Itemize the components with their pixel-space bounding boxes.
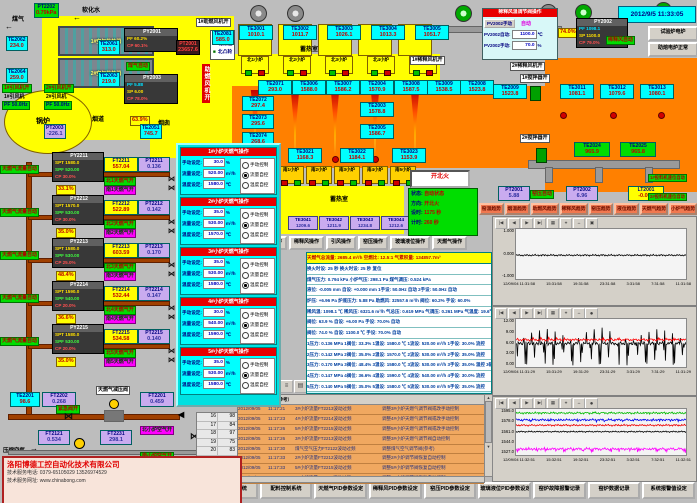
sensor-TE2201: TE220198.6 [10,392,40,407]
regen-sensor: TE30421211.9 [319,216,349,230]
sensor-PT2003: PT2003-226.1 [44,124,66,139]
north-fire-button[interactable]: 开北火 [410,170,470,188]
xtick: 23:31:58 [600,281,616,286]
mode-radio-temp[interactable]: 温度自控 [242,330,273,340]
south-burner[interactable]: 南4小炉 [362,166,388,184]
gas-pressure-sensor: PT22140.147 [138,286,170,301]
burner-green-indicator [371,70,378,76]
north-burner[interactable]: 北1小炉 [241,56,269,74]
datetime-display: 2012/9/5 11:33:05 [618,6,696,23]
burner-red-indicator [258,70,265,76]
burner-red-indicator [393,180,400,186]
nav-button[interactable]: 窑炉故障报警记录 [533,482,586,499]
company-info: 洛阳博德工控自动化技术有限公司 技术服务电话: 0379-65105029 13… [2,456,242,503]
xtick: 12/09/04 11:31:29 [503,369,535,374]
burner-green-indicator [294,180,301,186]
gas-flow-sensor: FT2213603.59 [104,243,138,258]
company-website: 技术服务网址: www.chinabong.com [7,478,237,486]
xtick: 12/09/04 11:31:58 [503,281,535,286]
ytick: 6.00 [506,340,514,345]
gas-valve-position: 35.0% [56,357,76,367]
mode-radio-manual[interactable]: 手动控制 [242,260,273,270]
sensor-TE2063: TE2063219.0 [98,72,120,87]
gas-valve-position: 33.1% [56,185,76,195]
control-mode-group: 手动控制 流量自控 温度自控 [240,358,275,394]
furnace-right [545,58,697,192]
south-burner[interactable]: 南2小炉 [306,166,332,184]
radio-icon [242,322,249,329]
water-arrow-icon: ← [73,14,81,22]
xtick: 23:32:51 [600,457,616,462]
count-row: 17 84 [197,422,237,431]
north-burner[interactable]: 北3小炉 [325,56,353,74]
gas-pressure-sensor: PT22120.142 [138,200,170,215]
north-burner[interactable]: 北2小炉 [283,56,311,74]
gas-train: 天燃气流量自动 PY2211 SPT 1580.0 SPF 520.00 CP … [0,152,178,388]
mode-radio-manual[interactable]: 手动控制 [242,210,273,220]
burner-red-indicator [309,180,316,186]
south-burner-row: 南1小炉 南2小炉 南3小炉 南4小炉 南5小炉 [278,166,416,184]
south-gas-open-label: 南4天燃气开 [104,315,136,324]
ytick: 9.00 [506,329,514,334]
fan-icon [455,5,472,22]
parameter-summary-panel: 天燃气总流量: 2685.4 m³/h 空燃比: 12.5:1 气累积量: 13… [306,252,492,394]
north-gas-open-label: 北1天燃气开 [104,177,136,186]
trend-button[interactable]: 小炉气趋势 [669,203,697,215]
burner-green-indicator [350,180,357,186]
gas-valve-position: 35.0% [56,228,76,238]
south-gas-open-label: 南3天燃气开 [104,272,136,281]
burner-gas-panel: 5#小炉天燃气操作 手动设定: 35.0 % 流量设定: 530.00 m³/h… [180,347,277,395]
sensor-TE2009: TE20091523.8 [493,84,527,99]
burner-gas-panel: 4#小炉天燃气操作 手动设定: 30.0 % 流量设定: 540.00 m³/h… [180,297,277,345]
burner-green-indicator [287,70,294,76]
burner-gas-row: 天燃气流量自动 PY2215 SPT 1580.0 SPF 530.00 CP … [0,324,178,367]
sensor-TE2024: TE2024965.9 [574,142,610,157]
burner-red-indicator [365,180,372,186]
test-furnace-button[interactable]: 试验炉电炉 [648,26,697,41]
scroll-thumb[interactable] [485,401,492,443]
flow-setpoint-input[interactable]: 520.00 [203,169,225,178]
fan2-on-label: 2#引风机开 [44,84,74,93]
status-row: 计时: 260 秒 [411,219,475,229]
burner-gas-panel: 1#小炉天燃气操作 手动设定: 30.0 % 流量设定: 520.00 m³/h… [180,147,277,195]
trend-button[interactable]: 窑压趋势 [589,203,614,215]
chart2-xaxis: 12/09/04 11:31:2915:31:2919:31:2923:31:2… [503,369,691,374]
sensor-PT2001: PT200123657.6 [176,40,200,55]
chart2-yaxis: 12.009.006.003.000.00 [494,318,514,366]
alarm-row[interactable]: 2012/09/05 11:17:26 3#小炉流量FT2213波动过频 调整3… [238,435,484,445]
mode-radio-manual[interactable]: 手动控制 [242,310,273,320]
sensor-TE2064: TE2064259.0 [6,68,28,83]
control-mode-group: 手动控制 流量自控 温度自控 [240,258,275,294]
flow-setpoint-input[interactable]: 530.00 [203,269,225,278]
manual-setpoint-input[interactable]: 30.0 [203,158,225,167]
panel-title: 5#小炉天燃气操作 [181,348,276,356]
burner-green-indicator [245,70,252,76]
gas-valve-position: 48.4% [56,271,76,281]
ytick: 1561.0 [501,429,514,434]
south-gas-valve-icon[interactable]: ⋈ [168,314,175,321]
indicator-dot [560,112,567,119]
radio-icon [242,272,249,279]
flow-setpoint-input[interactable]: 530.00 [203,369,225,378]
burner-green-indicator [378,180,385,186]
xtick: 7:31:58 [651,281,664,286]
sensor-TE2051: TE2051745.7 [140,124,162,139]
south-gas-valve-icon[interactable]: ⋈ [168,271,175,278]
radio-icon [242,372,249,379]
summary-row: 阀位: 63.9 % 自设: +6.00 Pa 手设: 70.0% 自动 [307,317,491,328]
temp-setpoint-input[interactable]: 1580.0 [203,380,225,389]
radio-icon [242,162,249,169]
menu-icon[interactable]: ≡ [280,380,293,393]
gas-flow-sensor: FT2214532.44 [104,286,138,301]
radio-icon [242,222,249,229]
operation-button[interactable]: 玻璃液位操作 [390,236,430,250]
radio-icon [242,282,249,289]
radio-icon [242,182,249,189]
mode-radio-flow[interactable]: 流量自控 [242,220,273,230]
ytick: -1.000 [502,273,514,278]
summary-row: 换火时设: 25 秒 换火时设: 25 秒 复位 [307,264,491,275]
summary-row: 5压力: 0.140 MPa 5阀位: 35.0% 5温设: 1580.0 ℃ … [307,382,491,393]
mode-radio-manual[interactable]: 手动控制 [242,160,273,170]
flow-meter-body [104,410,124,422]
panel-title: 3#小炉天燃气操作 [181,248,276,256]
auto-mode-label: 自动 [521,20,531,27]
fan1-on-label: 1#引风机开 [2,84,32,93]
ytick: 1.000 [504,228,514,233]
regen-sensor: TE30031026.1 [327,25,361,40]
radio-icon [242,172,249,179]
gas-flow-auto-label: 天燃气流量自动 [0,337,39,346]
mode-radio-manual[interactable]: 手动控制 [242,360,273,370]
nav-button[interactable]: 窑压PID参数设定 [424,482,477,499]
burner-red-indicator [384,70,391,76]
regen-label: 蓄热室 [300,44,318,53]
trend-chart-1: |◀◀▶▶|▦⌖↔▣ 1.0000.000-1.000 12/09/04 11:… [492,216,697,306]
burner-gas-panel: 3#小炉天燃气操作 手动设定: 35.0 % 流量设定: 530.00 m³/h… [180,247,277,295]
nav-button[interactable]: 窑炉数据记录 [588,482,641,499]
kiln-pressure-auto-label: 窑压自动 [530,190,554,199]
flow-setpoint-input[interactable]: 530.00 [203,219,225,228]
trend-chart-2: |◀◀▶▶|▦⌖↔▣ ● 12.009.006.003.000.00 12/09… [492,306,697,396]
company-phone: 技术服务电话: 0379-65105029 13526974529 [7,470,237,478]
control-mode-group: 手动控制 流量自控 温度自控 [240,308,275,344]
mode-radio-flow[interactable]: 流量自控 [242,320,273,330]
south-gas-open-label: 南5天燃气开 [104,358,136,367]
sensor-TE3007: TE30071586.2 [326,80,360,95]
nav-button[interactable]: 玻璃液位PID参数设定 [478,482,531,499]
nav-button[interactable]: 稀释风PID参数设定 [369,482,422,499]
radio-icon [242,232,249,239]
burner-red-indicator [300,70,307,76]
north-burner-row: 北1小炉 北2小炉 北3小炉 北4小炉 北5小炉 [241,56,437,74]
temp-setpoint-input[interactable]: 1580.0 [203,180,225,189]
panel-title: 4#小炉天燃气操作 [181,298,276,306]
nav-button[interactable]: 天燃气PID参数设定 [314,482,367,499]
sensor-TE3009: TE30091538.5 [427,80,461,95]
xtick: 11:31:29 [676,369,691,374]
alarm-hscrollbar[interactable] [237,476,485,483]
burner-green-indicator [329,70,336,76]
temp-setpoint-input[interactable]: 1570.0 [203,230,225,239]
melt-heater-button[interactable]: 助熔电炉正常 [648,42,697,57]
gas-flow-controller: PY2213 SPT 1580.0 SPF 530.00 CP 25.0% [52,238,104,268]
flue-label: 烟道 [92,114,104,123]
panel-title: 2#小炉天燃气操作 [181,198,276,206]
summary-row: 3压力: 0.170 MPa 3阀位: 48.4% 3温设: 1580.0 ℃ … [307,360,491,371]
operation-button[interactable]: 窑压操作 [358,236,388,250]
gas-reducer-label: 天燃气减压阀 [96,386,130,395]
burner-gas-popup: 1#小炉天燃气操作 手动设定: 30.0 % 流量设定: 520.00 m³/h… [176,143,281,407]
ytick: 1595.0 [501,408,514,413]
summary-row: 煤气压力: 0.794 kPa 小炉气压: 298.1 Pa 煤气调压: 0.5… [307,275,491,286]
flow-setpoint-input[interactable]: 540.00 [203,319,225,328]
south-gas-valve-icon[interactable]: ⋈ [168,185,175,192]
trend-button[interactable]: 助燃风趋势 [531,203,559,215]
regen-sensor: TE30041013.3 [371,25,405,40]
ytick: 0.00 [506,361,514,366]
north-gas-valve-icon[interactable]: ⋈ [168,219,175,226]
gas-auto-label: 煤气自动 [126,62,150,71]
trend-button-row: 窑温趋势烟温趋势助燃风趋势稀释风趋势窑压趋势液位趋势天燃气趋势小炉气趋势 [479,203,697,215]
sensor-TE3013: TE30131080.1 [640,84,674,99]
chart3-xaxis: 12/09/04 11:32:5115:32:5119:32:5123:32:5… [503,457,691,462]
sensor-TE3021: TE30211168.3 [288,148,322,163]
mode-radio-temp[interactable]: 温度自控 [242,180,273,190]
stirrer1-on-label: 1#搅拌器开 [520,74,550,83]
gas-flow-auto-label: 天燃气流量自动 [0,251,39,260]
xtick: 3:32:51 [627,457,640,462]
north-gas-open-label: 北5天燃气开 [104,349,136,358]
mode-radio-temp[interactable]: 温度自控 [242,380,273,390]
manual-setpoint-input[interactable]: 35.0 [203,258,225,267]
regen-sensor: TE30011010.1 [239,25,273,40]
trend-button[interactable]: 天燃气趋势 [640,203,668,215]
radio-icon [242,212,249,219]
summary-row: 炉压: +6.96 Pa 炉底压力: 5.88 Pa 助燃风: 32557.6 … [307,296,491,307]
hmi-screen: 煤气 ← 软化水 ← PT22020.79kPa 1#空气换热器 2#空气换热器… [0,0,697,503]
mode-radio-flow[interactable]: 流量自控 [242,170,273,180]
ytick: 1544.0 [501,439,514,444]
sensor-FT2231: FT2231298.1 [100,430,132,445]
gas-flow-controller: PY2214 SPT 1590.0 SPF 540.00 CP 20.0% [52,281,104,311]
sensor-TE3006: TE30061588.0 [292,80,326,95]
manual-setpoint-input[interactable]: 35.0 [203,208,225,217]
fan-icon [250,5,267,22]
north-gas-valve-icon[interactable]: ⋈ [168,262,175,269]
controller-PY2003: PY2003 PF 5.88 SP 6.00 CP 78.0% [124,74,178,104]
gas-flow-controller: PY2215 SPT 1580.0 SPF 530.00 CP 20.0% [52,324,104,354]
sensor-FT2121: FT21210.534 [38,430,70,445]
south-gas-valve-icon[interactable]: ⋈ [168,228,175,235]
burner-gas-panel: 2#小炉天燃气操作 手动设定: 35.0 % 流量设定: 530.00 m³/h… [180,197,277,245]
xtick: 19:31:29 [573,369,589,374]
mode-radio-flow[interactable]: 流量自控 [242,270,273,280]
trend-button[interactable]: 稀释风趋势 [560,203,588,215]
alarm-row[interactable]: 2012/09/05 11:17:33 5#小炉流量FT2215波动过频 调整5… [238,464,484,474]
chart1-yaxis: 1.0000.000-1.000 [494,228,514,278]
north-gas-open-label: 北3天燃气开 [104,263,136,272]
alarm-row[interactable]: 2012/09/05 11:17:30 煤气空气压力FT2122波动过频 调整煤… [238,445,484,455]
fan-icon [287,5,304,22]
sensor-TE2008: TE20081523.8 [460,80,494,95]
status-row: 状态: 自动状态 [411,190,475,200]
south-gas-valve-icon[interactable]: ⋈ [168,357,175,364]
mode-radio-temp[interactable]: 温度自控 [242,280,273,290]
radio-icon [242,362,249,369]
trend-button[interactable]: 烟温趋势 [505,203,530,215]
burner-gas-row: 天燃气流量自动 PY2214 SPT 1590.0 SPF 540.00 CP … [0,281,178,324]
operation-button-row: 助燃风操作稀释风操作引风操作窑压操作玻璃液位操作天燃气操作 [252,236,467,250]
scroll-down-icon[interactable]: ▼ [485,444,492,449]
indicator-dot [610,112,617,119]
manual-setpoint-input[interactable]: 30.0 [203,308,225,317]
south-burner[interactable]: 南3小炉 [334,166,360,184]
mode-radio-flow[interactable]: 流量自控 [242,370,273,380]
north-air-open-label: 北小炉空气开 [140,426,174,435]
south-gas-open-label: 南2天燃气开 [104,229,136,238]
comb-fan1-on-label: 1#助燃风机开 [196,18,231,27]
indicator-dot [658,112,665,119]
operation-button[interactable]: 稀释风操作 [289,236,324,250]
south-burner[interactable]: 南1小炉 [278,166,304,184]
north-gas-valve-icon[interactable]: ⋈ [168,305,175,312]
indicator-dot [332,156,339,163]
sensor-PT2202: PT22020.79kPa [34,3,59,18]
alarm-vscrollbar[interactable]: ▲ ▼ [484,394,493,477]
count-row: 20 83 [197,447,237,456]
scroll-up-icon[interactable]: ▲ [485,395,492,400]
summary-row: 2压力: 0.142 MPa 2阀位: 35.0% 2温设: 1570.0 ℃ … [307,350,491,361]
north-burner[interactable]: 北4小炉 [367,56,395,74]
gas-valve-position: 36.6% [56,314,76,324]
gas-flow-auto-label: 天燃气流量自动 [0,294,39,303]
dilution-fan1-on-label: 1#稀释风机开 [410,56,445,65]
radio-icon [242,312,249,319]
summary-row: 液位: -0.005 mm 自设: +0.000 mm 1手设: 50.0Hz … [307,285,491,296]
chart2-plot [515,318,687,368]
north-gas-valve-icon[interactable]: ⋈ [168,176,175,183]
summary-row: 4压力: 0.147 MPa 4阀位: 36.6% 4温设: 1590.0 ℃ … [307,371,491,382]
sensor-TE3023: TE30231153.9 [392,148,426,163]
controller-PY2001: PY2001 PF 60.2% CP 60.1% [124,28,178,52]
manifold-stub [545,167,553,183]
chart3-yaxis: 1595.01578.01561.01544.01527.0 [494,408,514,454]
alarm-rows: 2012/09/05 11:17:21 3#小炉流量FT2213波动过频 调整3… [238,405,484,484]
gas-pressure-sensor: PT22150.140 [138,329,170,344]
trend-button[interactable]: 窑温趋势 [479,203,504,215]
sensor-TE2061: TE2061313.0 [98,40,120,55]
agitator-icon [536,148,547,163]
burner-red-indicator [337,180,344,186]
xtick: 11:32:51 [676,457,691,462]
fan2-speed: PF 50.0Hz [44,101,72,110]
sensor-TE2005: TE20051586.7 [360,124,394,139]
radio-icon [242,382,249,389]
fan1-label: 1#引风机 [4,93,25,100]
burner-red-indicator [281,180,288,186]
burner-green-indicator [413,70,420,76]
manual-setpoint-input[interactable]: 35.0 [203,358,225,367]
south-regen-label: 蓄热室 [330,194,348,203]
operation-button[interactable]: 天燃气操作 [432,236,467,250]
dilution-valve-position: 74.0% [558,28,578,38]
burner-green-indicator [322,180,329,186]
status-row: 设时: 1175 秒 [411,209,475,219]
xtick: 23:31:29 [600,369,616,374]
regen-sensor: TE30051051.7 [415,25,449,40]
xtick: 3:31:29 [627,369,640,374]
regen-sensor-row: TE30011010.1 TE30021011.7 TE30031026.1 T… [239,25,449,40]
sensor-TE2081: TE2081585.0 [212,30,234,45]
operation-button[interactable]: 引风操作 [326,236,356,250]
temp-setpoint-input[interactable]: 1580.0 [203,280,225,289]
xtick: 15:31:58 [546,281,562,286]
pv2002-manual-button[interactable]: PV2002手动 [484,19,515,28]
gas-flow-auto-label: 天燃气流量自动 [0,208,39,217]
status-row: 方向: 开北火 [411,200,475,210]
nav-button[interactable]: 配料控制系统 [260,482,313,499]
feeder2-auto-label: 2#投料机速位自动 [648,193,687,201]
summary-row: 阀位: 74.0 % 自设: 1100.0 ℃ 手设: 70.0% 自动 [307,328,491,339]
regen-sensor: TE30441212.6 [381,216,411,230]
trend-chart-3: |◀◀▶▶|▦⌖↔▣ ● 1595.01578.01561.01544.0152… [492,396,697,482]
bottom-nav: 窑炉控制系统配料控制系统天燃气PID参数设定稀释风PID参数设定窑压PID参数设… [205,482,695,499]
summary-rows: 换火时设: 25 秒 换火时设: 25 秒 复位煤气压力: 0.794 kPa … [307,264,491,392]
nav-button[interactable]: 系统报警值设定 [642,482,695,499]
gas-flow-sensor: FT2211557.04 [104,157,138,172]
radio-icon [242,332,249,339]
mode-radio-temp[interactable]: 温度自控 [242,230,273,240]
xtick: 12/09/04 11:32:51 [503,457,535,462]
meter-indicator [109,399,119,409]
alarm-row[interactable]: 2012/09/05 11:17:26 5#小炉流量FT2215波动过频 调整5… [238,425,484,435]
emergency-valve-icon[interactable]: ⋈ [64,412,73,421]
alarm-row[interactable]: 2012/09/05 11:17:33 2#小炉流量FT2212波动过频 调整2… [238,454,484,464]
xtick: 7:31:29 [651,369,664,374]
sensor-PT2002-kiln: PT20026.96 [566,186,598,201]
temp-setpoint-input[interactable]: 1590.0 [203,330,225,339]
ytick: 1578.0 [501,418,514,423]
ytick: 3.00 [506,350,514,355]
ytick: 0.000 [504,251,514,256]
feeder1-auto-label: 1#投料机速位自动 [648,174,687,182]
company-name: 洛阳博德工控自动化技术有限公司 [7,459,237,470]
burner-red-indicator [426,70,433,76]
gas-flow-sensor: FT2212522.89 [104,200,138,215]
panel-title: 1#小炉天燃气操作 [181,148,276,156]
air-pipe [8,450,210,455]
sensor-TE2003: TE20031578.8 [360,102,394,117]
legend-item: ■北凸轮 [213,49,232,58]
alarm-row[interactable]: 2012/09/05 11:17:23 4#小炉流量FT2214波动过频 调整4… [238,415,484,425]
sensor-TE3012: TE30121079.6 [600,84,634,99]
gas-arrow-icon: ← [5,23,13,31]
burner-gas-row: 天燃气流量自动 PY2213 SPT 1580.0 SPF 530.00 CP … [0,238,178,281]
ytick: 1527.0 [501,449,514,454]
chart1-plot [515,228,687,280]
regen-sensor: TE30411209.6 [288,216,318,230]
pv2002-manual-setpoint-input[interactable]: 70.0 [512,41,537,50]
changeover-status-panel: 状态: 自动状态方向: 开北火设时: 1175 秒计时: 260 秒 [408,188,478,236]
trend-button[interactable]: 液位趋势 [614,203,639,215]
north-gas-valve-icon[interactable]: ⋈ [168,348,175,355]
xtick: 11:31:58 [676,281,691,286]
pv2002-auto-setpoint-input[interactable]: 1100.0 [512,30,537,39]
